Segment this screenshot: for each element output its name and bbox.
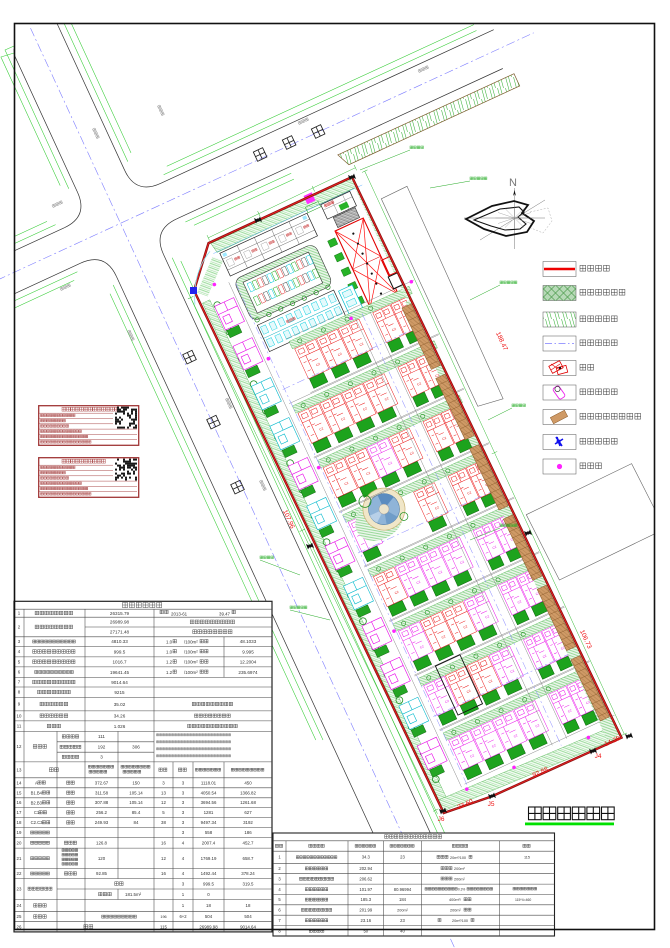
svg-text:11: 11 (17, 724, 22, 729)
svg-text:23.16: 23.16 (361, 918, 372, 923)
svg-text:1016.7: 1016.7 (112, 660, 126, 665)
svg-text:185.3: 185.3 (361, 897, 372, 902)
svg-text:B2.B3: B2.B3 (31, 800, 43, 805)
svg-text:14: 14 (17, 780, 22, 785)
svg-text:400m²/: 400m²/ (449, 898, 462, 902)
svg-text:23: 23 (17, 886, 22, 891)
svg-text:2013-61: 2013-61 (171, 611, 188, 616)
svg-text:181.5m²: 181.5m² (125, 892, 142, 897)
svg-text:150: 150 (132, 780, 140, 785)
svg-text:319.5: 319.5 (243, 881, 255, 886)
svg-text:4810.33: 4810.33 (111, 639, 128, 644)
svg-text:9014.64: 9014.64 (240, 924, 256, 929)
svg-text:38: 38 (161, 820, 166, 825)
svg-text:N: N (509, 177, 517, 189)
svg-text:9014.64: 9014.64 (111, 680, 128, 685)
svg-text:256.2: 256.2 (96, 810, 108, 815)
svg-text:1.0: 1.0 (166, 649, 173, 654)
svg-text:16: 16 (161, 871, 166, 876)
svg-text:39.47: 39.47 (219, 611, 231, 616)
svg-text:9215: 9215 (114, 690, 125, 695)
svg-text:1.2: 1.2 (166, 670, 173, 675)
svg-text:126.8: 126.8 (96, 840, 108, 845)
svg-text:20: 20 (17, 840, 22, 845)
svg-text:186: 186 (244, 830, 252, 835)
svg-text:1492.44: 1492.44 (201, 871, 217, 876)
svg-text:12: 12 (161, 800, 166, 805)
svg-text:92.85: 92.85 (96, 871, 108, 876)
svg-text:34.26: 34.26 (114, 714, 126, 719)
svg-text:19: 19 (17, 830, 22, 835)
svg-text:/100m²: /100m² (184, 660, 198, 665)
svg-text:12: 12 (17, 744, 22, 749)
svg-text:235.6974: 235.6974 (238, 670, 258, 675)
svg-text:/100m²: /100m² (184, 639, 198, 644)
svg-text:15: 15 (17, 790, 22, 795)
svg-text:1.2: 1.2 (166, 660, 173, 665)
svg-text:16: 16 (17, 800, 22, 805)
svg-text:9497.34: 9497.34 (201, 820, 217, 825)
svg-text:307.88: 307.88 (95, 800, 109, 805)
svg-text:1366.82: 1366.82 (240, 790, 256, 795)
svg-text:1118.01: 1118.01 (201, 780, 217, 785)
svg-text:105.14: 105.14 (129, 800, 143, 805)
svg-text:111: 111 (98, 734, 105, 739)
svg-text:378.24: 378.24 (241, 871, 255, 876)
svg-text:206.62: 206.62 (359, 876, 372, 881)
svg-text:1281: 1281 (204, 810, 214, 815)
svg-text:9.995: 9.995 (242, 649, 254, 654)
svg-text:1261.68: 1261.68 (240, 800, 256, 805)
svg-text:18: 18 (246, 903, 251, 908)
svg-text:999.5: 999.5 (203, 881, 215, 886)
svg-text:22: 22 (17, 871, 22, 876)
svg-text:504: 504 (244, 914, 252, 919)
svg-text:504: 504 (205, 914, 213, 919)
svg-text:202.94: 202.94 (359, 866, 372, 871)
svg-text:192: 192 (98, 745, 106, 750)
svg-text:200m²: 200m² (397, 908, 408, 912)
svg-text:48.1033: 48.1033 (240, 639, 257, 644)
svg-text:1.0: 1.0 (166, 639, 173, 644)
svg-text:16: 16 (161, 840, 166, 845)
svg-text:115: 115 (524, 856, 530, 860)
svg-text:3: 3 (100, 755, 103, 760)
svg-text:26989.98: 26989.98 (199, 924, 218, 929)
svg-text:372.67: 372.67 (95, 780, 109, 785)
svg-text:/100m²: /100m² (184, 649, 198, 654)
svg-text:19641.45: 19641.45 (110, 670, 130, 675)
svg-text:1.026: 1.026 (114, 724, 126, 729)
svg-text:999.5: 999.5 (114, 649, 126, 654)
svg-text:12.2004: 12.2004 (240, 660, 257, 665)
svg-text:26315.79: 26315.79 (110, 611, 130, 616)
svg-text:0.3%: 0.3% (458, 888, 465, 892)
svg-text:311.58: 311.58 (95, 790, 109, 795)
svg-text:3192: 3192 (243, 820, 253, 825)
svg-text:A: A (35, 780, 38, 785)
svg-text:B1.B4: B1.B4 (31, 790, 43, 795)
svg-text:35.02: 35.02 (114, 702, 126, 707)
svg-text:/100m²: /100m² (184, 670, 198, 675)
svg-text:105.14: 105.14 (129, 790, 143, 795)
svg-text:120: 120 (98, 856, 106, 861)
svg-text:18: 18 (17, 820, 22, 825)
svg-text:27171.48: 27171.48 (110, 630, 130, 635)
svg-text:452.7: 452.7 (243, 840, 255, 845)
svg-text:200m²: 200m² (454, 877, 465, 881)
svg-text:200m²: 200m² (450, 909, 461, 913)
svg-text:84: 84 (134, 820, 139, 825)
svg-text:J6: J6 (438, 816, 445, 823)
svg-text:101.97: 101.97 (359, 887, 372, 892)
svg-text:34.3: 34.3 (362, 855, 371, 860)
svg-text:12: 12 (161, 856, 166, 861)
svg-text:85.4: 85.4 (132, 810, 141, 815)
svg-text:20m²/100: 20m²/100 (452, 919, 468, 923)
svg-text:18: 18 (206, 903, 211, 908)
svg-text:450: 450 (244, 780, 252, 785)
svg-text:24: 24 (17, 903, 22, 908)
svg-text:196: 196 (160, 915, 166, 919)
svg-text:20m²/100: 20m²/100 (450, 856, 466, 860)
svg-text:23: 23 (400, 918, 405, 923)
svg-text:26989.98: 26989.98 (110, 620, 130, 625)
svg-text:249.93: 249.93 (95, 820, 109, 825)
svg-text:200m²: 200m² (454, 867, 465, 871)
svg-text:23: 23 (400, 855, 405, 860)
svg-text:3694.56: 3694.56 (201, 800, 217, 805)
svg-text:21: 21 (17, 856, 22, 861)
svg-text:6+2: 6+2 (179, 914, 187, 919)
svg-text:627: 627 (244, 810, 252, 815)
svg-text:10: 10 (17, 713, 22, 718)
svg-text:4050.54: 4050.54 (201, 790, 217, 795)
svg-text:2007.4: 2007.4 (202, 840, 216, 845)
svg-text:115*4=460: 115*4=460 (515, 898, 531, 902)
svg-text:1769.19: 1769.19 (201, 856, 217, 861)
svg-text:80.96994: 80.96994 (394, 887, 412, 892)
svg-text:25: 25 (17, 914, 22, 919)
svg-text:201.99: 201.99 (359, 908, 372, 913)
svg-text:184: 184 (399, 897, 407, 902)
svg-text:17: 17 (17, 810, 22, 815)
svg-text:658.7: 658.7 (243, 856, 255, 861)
svg-text:13: 13 (17, 767, 22, 772)
svg-text:13: 13 (161, 790, 166, 795)
svg-text:115: 115 (160, 924, 168, 929)
svg-text:J4: J4 (595, 753, 602, 760)
svg-text:306: 306 (132, 745, 140, 750)
svg-text:26: 26 (17, 924, 22, 929)
svg-text:558: 558 (205, 830, 213, 835)
svg-text:C2.C3: C2.C3 (31, 820, 44, 825)
svg-text:J5: J5 (488, 801, 495, 808)
